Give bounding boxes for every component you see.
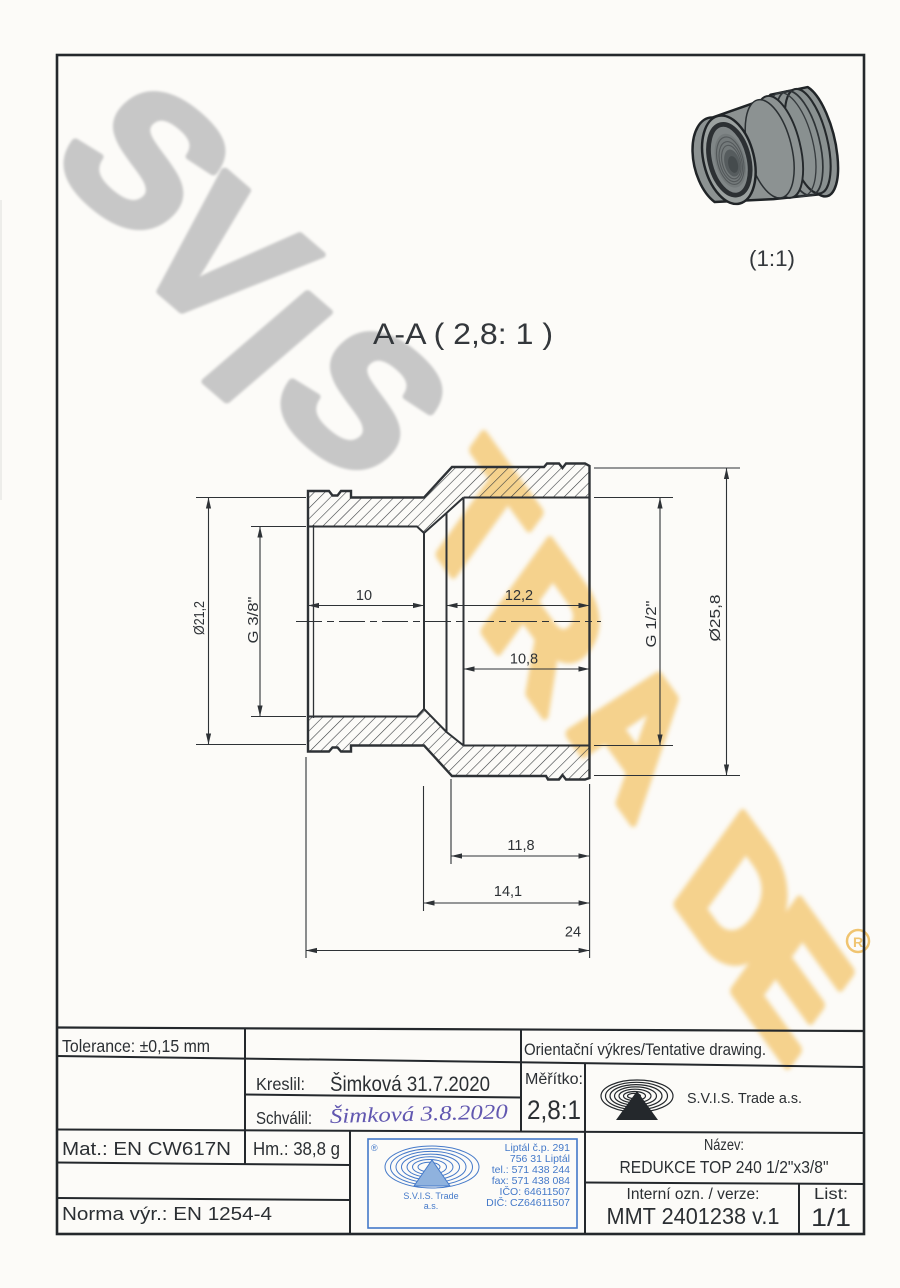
svg-text:24: 24 bbox=[565, 925, 581, 941]
svg-text:Hm.: 38,8 g: Hm.: 38,8 g bbox=[253, 1139, 340, 1159]
svg-text:2,8:1: 2,8:1 bbox=[527, 1095, 581, 1125]
svg-text:Interní ozn. / verze:: Interní ozn. / verze: bbox=[627, 1186, 760, 1203]
svg-text:10,8: 10,8 bbox=[510, 652, 538, 668]
svg-text:R: R bbox=[853, 934, 863, 950]
svg-text:Měřítko:: Měřítko: bbox=[525, 1071, 583, 1088]
svg-text:11,8: 11,8 bbox=[507, 838, 534, 854]
svg-text:S.V.I.S. Trade: S.V.I.S. Trade bbox=[403, 1191, 458, 1201]
svg-text:MMT 2401238 v.1: MMT 2401238 v.1 bbox=[607, 1203, 780, 1229]
svg-text:®: ® bbox=[371, 1143, 378, 1153]
svg-text:Mat.: EN CW617N: Mat.: EN CW617N bbox=[62, 1139, 231, 1159]
svg-text:G 3/8": G 3/8" bbox=[246, 597, 262, 644]
svg-text:Název:: Název: bbox=[704, 1137, 744, 1154]
svg-text:S.V.I.S. Trade a.s.: S.V.I.S. Trade a.s. bbox=[687, 1090, 802, 1107]
svg-text:Schválil:: Schválil: bbox=[256, 1108, 312, 1128]
svg-text:a.s.: a.s. bbox=[424, 1201, 439, 1211]
svg-text:Ø21,2: Ø21,2 bbox=[192, 601, 208, 635]
svg-text:DIČ: CZ64611507: DIČ: CZ64611507 bbox=[486, 1196, 570, 1209]
svg-text:1/1: 1/1 bbox=[811, 1204, 851, 1232]
svg-text:Šimková 3.8.2020: Šimková 3.8.2020 bbox=[330, 1099, 509, 1128]
svg-text:(1:1): (1:1) bbox=[749, 246, 795, 271]
svg-text:Kreslil:: Kreslil: bbox=[256, 1074, 305, 1094]
svg-text:Ø25,8: Ø25,8 bbox=[708, 595, 724, 642]
svg-text:12,2: 12,2 bbox=[505, 588, 533, 604]
svg-text:G 1/2": G 1/2" bbox=[644, 601, 660, 648]
svg-text:14,1: 14,1 bbox=[494, 884, 522, 900]
svg-text:Norma výr.: EN 1254-4: Norma výr.: EN 1254-4 bbox=[62, 1204, 272, 1224]
svg-text:List:: List: bbox=[814, 1186, 848, 1203]
svg-text:Orientační výkres/Tentative dr: Orientační výkres/Tentative drawing. bbox=[524, 1040, 766, 1059]
svg-text:Tolerance: ±0,15 mm: Tolerance: ±0,15 mm bbox=[62, 1036, 210, 1056]
svg-text:10: 10 bbox=[356, 588, 372, 604]
svg-text:A-A ( 2,8: 1 ): A-A ( 2,8: 1 ) bbox=[373, 318, 553, 351]
svg-text:Šimková 31.7.2020: Šimková 31.7.2020 bbox=[330, 1073, 490, 1096]
svg-text:REDUKCE TOP 240 1/2"x3/8": REDUKCE TOP 240 1/2"x3/8" bbox=[620, 1157, 829, 1177]
